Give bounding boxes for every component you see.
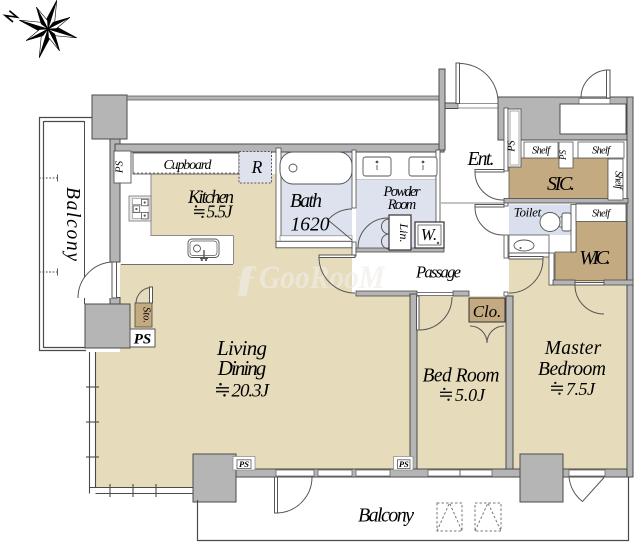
svg-text:Shelf: Shelf <box>613 171 624 191</box>
svg-text:ƒƒ: ƒƒ <box>235 259 257 300</box>
svg-text:Bath: Bath <box>290 191 322 212</box>
svg-text:Bed Room: Bed Room <box>423 366 500 387</box>
svg-text:Ent.: Ent. <box>467 149 495 170</box>
svg-text:Passage: Passage <box>415 263 461 282</box>
svg-text:WIC.: WIC. <box>579 247 611 269</box>
svg-text:Bedroom: Bedroom <box>538 359 606 380</box>
svg-text:PS: PS <box>558 150 568 161</box>
svg-text:Room: Room <box>387 197 417 213</box>
svg-text:Shelf: Shelf <box>532 146 552 157</box>
svg-text:Shelf: Shelf <box>592 209 612 220</box>
svg-text:Dining: Dining <box>217 356 267 380</box>
svg-text:Lin.: Lin. <box>397 222 411 242</box>
svg-text:Balcony: Balcony <box>62 187 83 261</box>
svg-text:1620: 1620 <box>291 215 330 236</box>
svg-text:PS: PS <box>134 332 152 348</box>
svg-text:PS: PS <box>114 160 126 174</box>
svg-text:Balcony: Balcony <box>358 505 414 527</box>
svg-text:Clo.: Clo. <box>473 302 502 321</box>
svg-text:R: R <box>251 157 263 177</box>
svg-text:Toilet: Toilet <box>514 205 542 220</box>
svg-text:5.0J: 5.0J <box>455 385 486 405</box>
svg-text:PS: PS <box>399 459 409 469</box>
svg-text:PS: PS <box>507 140 518 152</box>
svg-text:SIC.: SIC. <box>547 173 575 195</box>
svg-text:Sto.: Sto. <box>141 307 152 323</box>
svg-text:Shelf: Shelf <box>592 146 612 157</box>
svg-text:7.5J: 7.5J <box>566 379 596 399</box>
svg-text:W.: W. <box>421 225 437 244</box>
svg-text:Cupboard: Cupboard <box>164 158 213 173</box>
svg-text:5.5J: 5.5J <box>207 202 234 222</box>
svg-text:20.3J: 20.3J <box>232 381 271 402</box>
svg-text:PS: PS <box>239 459 249 469</box>
svg-text:Master: Master <box>544 338 602 359</box>
